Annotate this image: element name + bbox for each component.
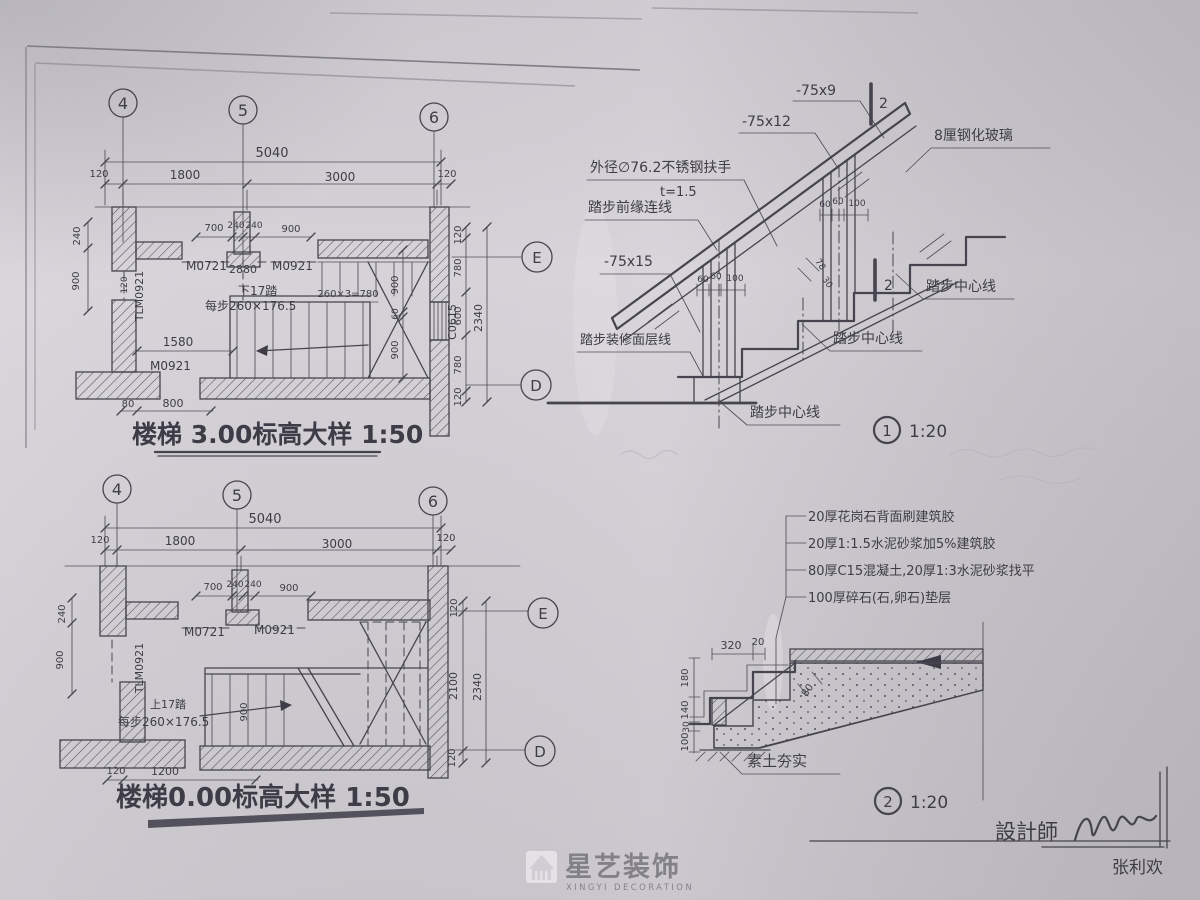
dim: 60: [697, 275, 709, 285]
dim: 120: [120, 276, 130, 293]
dim-total-vert: 2340: [472, 304, 485, 332]
door-label: M0921: [272, 259, 313, 273]
wall: [112, 207, 136, 271]
grid-label: D: [534, 743, 546, 761]
door-label-tlm: TLM0921: [133, 271, 146, 322]
dim: 240: [72, 226, 83, 245]
door-label: M0721: [186, 259, 227, 273]
dim: 80: [122, 399, 135, 410]
tread-calc-note: 260×3=780: [317, 289, 378, 300]
material-note: 20厚1:1.5水泥砂浆加5%建筑胶: [808, 536, 996, 552]
dim: 900: [390, 340, 401, 359]
dim: 180: [680, 668, 691, 687]
dim: 3000: [322, 537, 353, 551]
dim: 2100: [447, 672, 460, 700]
dim: 900: [71, 271, 82, 290]
designer-name: 张利欢: [1112, 858, 1163, 878]
label-handrail: 外径∅76.2不锈钢扶手: [590, 160, 731, 176]
door-label-tlm: TLM0921: [133, 643, 146, 694]
stair-direction-note: 下17踏: [238, 284, 277, 298]
grid-label: 6: [429, 108, 439, 127]
dim-run: 1580: [163, 335, 194, 349]
wall: [428, 566, 448, 778]
window-label: C0615: [446, 304, 459, 340]
label-center-line: 踏步中心线: [833, 331, 903, 347]
dim: 800: [163, 397, 184, 410]
label-compacted-soil: 素土夯实: [747, 752, 807, 770]
dim: 1800: [170, 168, 201, 182]
section-mark-label: 2: [879, 96, 888, 112]
step-edge-hatch: [712, 698, 726, 725]
dim: 780: [453, 258, 464, 277]
section-mark-label: 2: [884, 278, 893, 294]
dim: 140: [680, 700, 691, 719]
watermark-en: XINGYI DECORATION: [566, 883, 694, 893]
dim-total-vert: 2340: [471, 673, 484, 701]
stair-direction-note: 上17踏: [150, 697, 186, 711]
designer-label: 設計師: [995, 820, 1058, 844]
dim: 60: [710, 272, 722, 282]
dim: 100: [848, 199, 865, 209]
wall: [430, 207, 449, 302]
wall: [100, 566, 126, 636]
material-note: 100厚碎石(石,卵石)垫层: [808, 590, 951, 606]
door-label: M0921: [254, 623, 295, 637]
dim: 120: [436, 533, 455, 544]
plan-title: 楼梯 3.00标高大样 1:50: [132, 420, 423, 449]
label-nose-line: 踏步前缘连线: [588, 199, 672, 216]
material-note: 80厚C15混凝土,20厚1:3水泥砂浆找平: [808, 563, 1035, 579]
door-label: M0721: [184, 625, 225, 639]
wall: [126, 602, 178, 619]
landing-slab: [318, 240, 428, 258]
grid-label: 5: [238, 101, 248, 120]
stair-detail-drawing-photo: 4 5 6 5040 120 1800 3000 120 700 240 240…: [0, 0, 1200, 900]
dim: 100: [680, 732, 691, 751]
grid-label: E: [532, 249, 541, 267]
label-flat-bar-15: -75x15: [604, 254, 653, 270]
door-label: M0921: [150, 359, 191, 373]
dim-total: 5040: [255, 146, 288, 161]
dim: 900: [390, 275, 401, 294]
drawing-canvas: 4 5 6 5040 120 1800 3000 120 700 240 240…: [0, 0, 1200, 900]
dim: 100: [726, 274, 743, 284]
dim: 900: [279, 583, 298, 594]
dim: 30: [682, 721, 692, 733]
dim-flight-width: 900: [239, 702, 250, 721]
wall: [200, 378, 430, 399]
dim: 120: [449, 598, 460, 617]
dim: 700: [204, 223, 223, 234]
dim: 240: [57, 604, 68, 623]
dim: 900: [55, 650, 66, 669]
dim: 900: [281, 224, 300, 235]
column: [232, 570, 248, 612]
grid-label: 5: [232, 486, 242, 505]
label-flat-bar-9: -75x9: [796, 83, 836, 99]
wall: [76, 372, 160, 399]
dim-total: 5040: [248, 512, 281, 527]
stair-step-note: 每步260×176.5: [118, 714, 209, 729]
dim: 60: [832, 197, 844, 207]
dim: 20: [752, 637, 765, 648]
wall: [136, 242, 182, 259]
dim: 320: [721, 639, 742, 652]
watermark-cn: 星艺装饰: [565, 852, 681, 883]
detail-scale: 1:20: [910, 793, 948, 813]
detail-number: 2: [883, 793, 893, 811]
dim: 120: [453, 387, 464, 406]
material-note: 20厚花岗石背面刷建筑胶: [808, 509, 955, 525]
stair-step-note: 每步260×176.5: [205, 298, 296, 313]
label-flat-bar-12: -75x12: [742, 114, 791, 130]
dim: 120: [453, 225, 464, 244]
grid-label: E: [538, 605, 547, 623]
dim: 60: [819, 200, 831, 210]
column-pad: [227, 252, 260, 267]
grid-label: 4: [112, 480, 122, 499]
wall: [60, 740, 185, 768]
grid-label: 4: [118, 94, 128, 113]
dim: 120: [437, 169, 456, 180]
label-center-line: 踏步中心线: [926, 279, 996, 295]
detail-scale: 1:20: [909, 422, 947, 442]
grid-label: D: [530, 377, 542, 395]
dim: 120: [89, 169, 108, 180]
dim: 1800: [165, 534, 196, 548]
detail-number: 1: [882, 422, 892, 440]
plan-title: 楼梯0.00标高大样 1:50: [116, 782, 410, 813]
dim: 780: [453, 355, 464, 374]
wall: [200, 746, 430, 770]
column: [234, 212, 250, 254]
dim: 3000: [325, 170, 356, 184]
wall: [430, 340, 449, 436]
label-glass: 8厘钢化玻璃: [934, 127, 1013, 144]
dim: 700: [203, 582, 222, 593]
label-finish-line: 踏步装修面层线: [580, 333, 671, 348]
grid-label: 6: [428, 492, 438, 511]
label-handrail-thickness: t=1.5: [660, 185, 697, 200]
label-center-line: 踏步中心线: [750, 405, 820, 421]
dim: 120: [90, 535, 109, 546]
landing-slab: [308, 600, 430, 620]
